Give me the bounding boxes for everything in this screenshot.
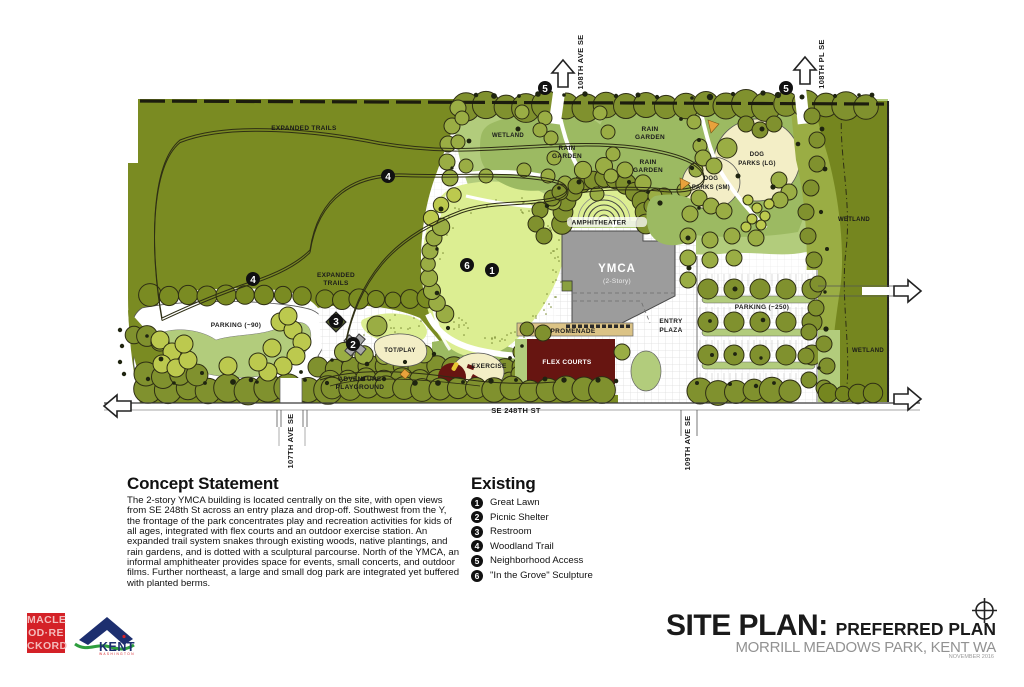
- svg-text:6: 6: [464, 261, 470, 272]
- svg-text:1: 1: [489, 266, 495, 277]
- svg-text:PARKS (LG): PARKS (LG): [738, 161, 776, 167]
- svg-text:TRAILS: TRAILS: [323, 280, 349, 287]
- svg-text:WETLAND: WETLAND: [852, 348, 884, 354]
- svg-text:108TH AVE SE: 108TH AVE SE: [576, 35, 585, 90]
- svg-text:PROMENADE: PROMENADE: [551, 328, 596, 335]
- svg-text:WETLAND: WETLAND: [838, 217, 870, 223]
- svg-text:WETLAND: WETLAND: [492, 133, 524, 139]
- svg-text:PLAZA: PLAZA: [659, 327, 682, 334]
- svg-text:GARDEN: GARDEN: [552, 153, 582, 160]
- svg-text:RAIN: RAIN: [639, 159, 656, 166]
- svg-text:EXPANDED TRAILS: EXPANDED TRAILS: [271, 125, 337, 132]
- svg-text:4: 4: [250, 275, 256, 286]
- svg-text:107TH AVE SE: 107TH AVE SE: [286, 414, 295, 469]
- svg-text:GARDEN: GARDEN: [633, 167, 663, 174]
- svg-text:RAIN: RAIN: [558, 145, 575, 152]
- svg-text:RAIN: RAIN: [641, 126, 658, 133]
- svg-text:108TH PL SE: 108TH PL SE: [817, 39, 826, 88]
- svg-text:DOG: DOG: [704, 176, 719, 182]
- svg-text:5: 5: [542, 84, 548, 95]
- svg-text:FLEX COURTS: FLEX COURTS: [542, 359, 592, 366]
- svg-text:3: 3: [333, 317, 339, 328]
- svg-text:109TH AVE SE: 109TH AVE SE: [683, 416, 692, 471]
- svg-text:PARKING (~90): PARKING (~90): [211, 322, 262, 329]
- svg-text:2: 2: [350, 340, 356, 351]
- svg-text:PARKING (~250): PARKING (~250): [735, 304, 789, 311]
- svg-text:5: 5: [783, 84, 789, 95]
- svg-text:SE 248TH ST: SE 248TH ST: [491, 406, 541, 415]
- svg-text:PARKS (SM): PARKS (SM): [692, 185, 730, 191]
- svg-text:4: 4: [385, 172, 391, 183]
- svg-text:TOT/PLAY: TOT/PLAY: [384, 348, 415, 354]
- svg-text:AMPHITHEATER: AMPHITHEATER: [572, 220, 627, 227]
- svg-text:ADVENTURE: ADVENTURE: [338, 376, 382, 383]
- svg-text:GARDEN: GARDEN: [635, 134, 665, 141]
- svg-text:PLAYGROUND: PLAYGROUND: [336, 384, 385, 391]
- svg-text:ENTRY: ENTRY: [659, 318, 683, 325]
- svg-text:(2-Story): (2-Story): [603, 278, 631, 285]
- svg-text:EXPANDED: EXPANDED: [317, 272, 355, 279]
- svg-text:EXERCISE: EXERCISE: [471, 363, 507, 370]
- svg-text:WASHINGTON: WASHINGTON: [99, 652, 135, 656]
- svg-text:YMCA: YMCA: [598, 263, 636, 275]
- svg-text:DOG: DOG: [750, 152, 765, 158]
